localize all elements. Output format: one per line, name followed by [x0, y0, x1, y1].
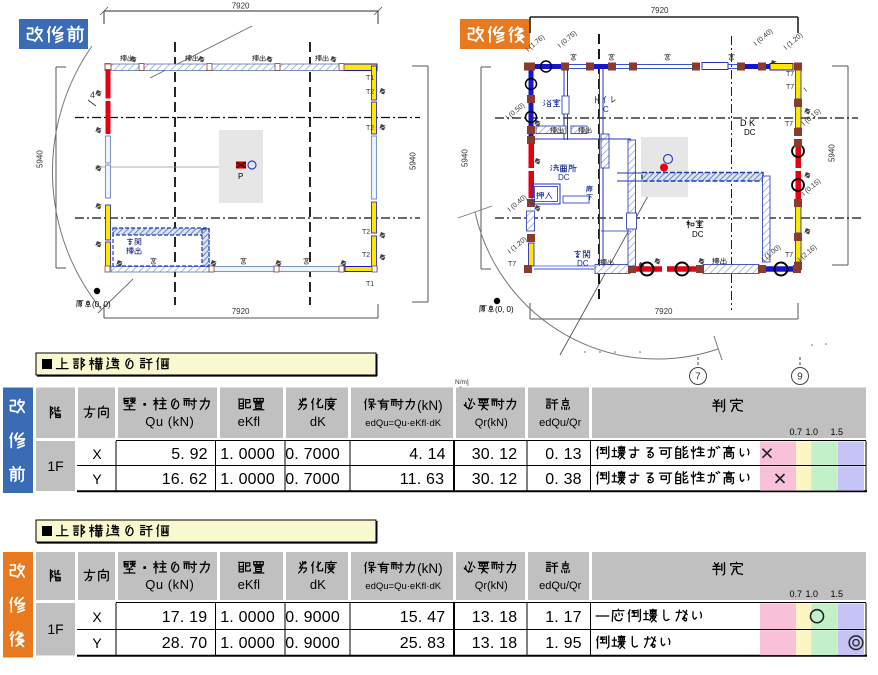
svg-text:0. 38: 0. 38	[545, 471, 582, 488]
svg-text:Y: Y	[92, 471, 102, 487]
svg-text:1.0: 1.0	[806, 589, 819, 599]
svg-text:X: X	[92, 609, 102, 625]
svg-text:T2: T2	[366, 89, 374, 96]
svg-text:0.7: 0.7	[790, 427, 803, 437]
svg-text:0. 9000: 0. 9000	[285, 635, 340, 652]
svg-text:4. 14: 4. 14	[409, 446, 446, 463]
svg-text:T2: T2	[366, 125, 374, 132]
svg-text:N/m]: N/m]	[455, 379, 469, 386]
svg-text:T7: T7	[508, 261, 516, 268]
svg-text:5. 92: 5. 92	[171, 446, 208, 463]
svg-text:0. 13: 0. 13	[545, 446, 582, 463]
svg-text:28. 70: 28. 70	[162, 635, 208, 652]
svg-text:1.5: 1.5	[831, 589, 844, 599]
svg-text:7920: 7920	[655, 307, 673, 316]
svg-text:Qr(kN): Qr(kN)	[475, 417, 508, 429]
svg-text:7: 7	[695, 372, 701, 383]
svg-text:5940: 5940	[409, 152, 418, 170]
svg-text:(kN): (kN)	[417, 561, 443, 576]
svg-text:25. 83: 25. 83	[400, 635, 446, 652]
svg-text:DC: DC	[577, 259, 589, 268]
svg-text:5940: 5940	[461, 149, 470, 167]
svg-text:C: C	[603, 105, 609, 114]
svg-text:1. 95: 1. 95	[545, 635, 582, 652]
svg-text:eKfl: eKfl	[238, 414, 261, 429]
svg-text:0.7: 0.7	[790, 589, 803, 599]
svg-text:dK: dK	[310, 577, 326, 592]
svg-text:0. 7000: 0. 7000	[285, 471, 340, 488]
svg-text:5940: 5940	[828, 144, 837, 162]
svg-text:T7: T7	[786, 71, 794, 78]
svg-text:T7: T7	[785, 252, 793, 259]
svg-text:DC: DC	[744, 128, 756, 137]
svg-text:15. 47: 15. 47	[400, 609, 446, 626]
svg-text:0. 9000: 0. 9000	[285, 609, 340, 626]
svg-text:7920: 7920	[651, 6, 669, 15]
svg-text:Y: Y	[92, 635, 102, 651]
svg-text:1F: 1F	[47, 458, 63, 474]
svg-text:1F: 1F	[47, 621, 63, 637]
svg-text:X: X	[92, 446, 102, 462]
svg-text:Qu (kN): Qu (kN)	[145, 414, 194, 429]
svg-text:P: P	[238, 172, 243, 181]
svg-text:1. 17: 1. 17	[545, 609, 582, 626]
svg-text:Qr(kN): Qr(kN)	[475, 580, 508, 592]
svg-text:1. 0000: 1. 0000	[220, 471, 275, 488]
svg-text:edQu/Qr: edQu/Qr	[539, 580, 582, 592]
svg-text:1. 0000: 1. 0000	[220, 446, 275, 463]
svg-text:T7: T7	[785, 121, 793, 128]
svg-text:11. 63: 11. 63	[400, 471, 445, 488]
svg-text:13. 18: 13. 18	[472, 635, 518, 652]
svg-text:(kN): (kN)	[417, 398, 443, 413]
svg-text:30. 12: 30. 12	[472, 446, 518, 463]
svg-text:1. 0000: 1. 0000	[220, 635, 275, 652]
svg-text:DC: DC	[692, 230, 704, 239]
svg-text:edQu=Qu·eKfl·dK: edQu=Qu·eKfl·dK	[365, 581, 441, 592]
svg-text:T7: T7	[786, 84, 794, 91]
svg-text:T1: T1	[366, 75, 374, 82]
svg-text:4: 4	[90, 90, 95, 100]
svg-text:edQu/Qr: edQu/Qr	[539, 417, 582, 429]
svg-text:D K: D K	[740, 118, 755, 128]
svg-text:edQu=Qu·eKfl·dK: edQu=Qu·eKfl·dK	[365, 418, 441, 429]
svg-text:0. 7000: 0. 7000	[285, 446, 340, 463]
svg-text:16. 62: 16. 62	[162, 471, 208, 488]
svg-text:13. 18: 13. 18	[472, 609, 518, 626]
svg-text:1.0: 1.0	[806, 427, 819, 437]
svg-text:30. 12: 30. 12	[472, 471, 518, 488]
svg-text:7920: 7920	[232, 307, 250, 316]
svg-text:T2: T2	[362, 229, 370, 236]
svg-text:T1: T1	[366, 281, 374, 288]
svg-text:1.5: 1.5	[831, 427, 844, 437]
svg-text:7920: 7920	[232, 2, 250, 11]
svg-text:1. 0000: 1. 0000	[220, 609, 275, 626]
svg-text:5940: 5940	[36, 150, 45, 168]
svg-text:dK: dK	[310, 414, 326, 429]
svg-text:9: 9	[797, 372, 803, 383]
svg-text:Qu (kN): Qu (kN)	[145, 577, 194, 592]
svg-text:eKfl: eKfl	[238, 577, 261, 592]
svg-text:(0, 0): (0, 0)	[495, 305, 514, 314]
svg-text:17. 19: 17. 19	[162, 609, 208, 626]
svg-text:T2: T2	[362, 252, 370, 259]
svg-text:(0, 0): (0, 0)	[92, 300, 111, 309]
svg-text:DC: DC	[558, 173, 570, 182]
